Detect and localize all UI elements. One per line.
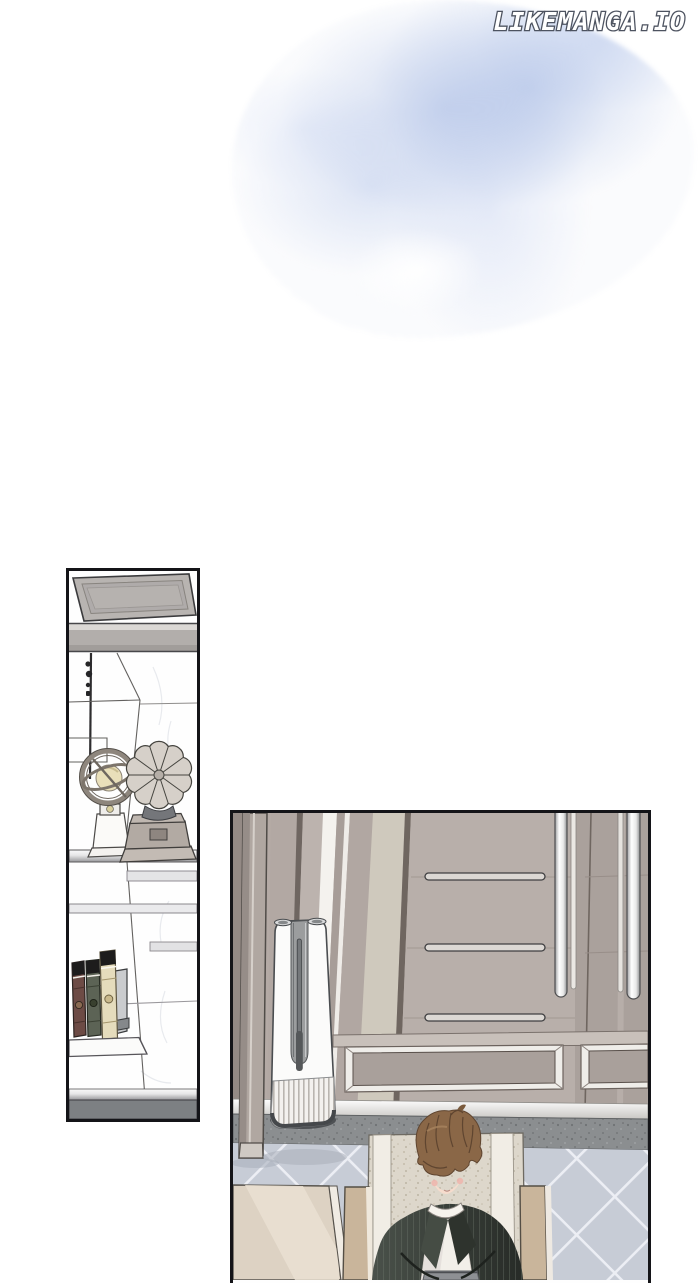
panel-room: [230, 810, 651, 1283]
watercolor-wash: [232, 0, 694, 338]
cabinet-top-slab: [73, 574, 196, 621]
base-plinth: [69, 1089, 197, 1119]
manga-page: LIKEMANGA.IO: [0, 0, 700, 1280]
site-watermark: LIKEMANGA.IO: [440, 2, 690, 42]
side-table: [233, 1185, 349, 1280]
watermark-text: LIKEMANGA.IO: [493, 7, 686, 36]
book-shelf-board: [69, 1038, 147, 1057]
door-bottom-panels: [333, 1031, 648, 1092]
cabinet-underside-band: [69, 623, 197, 652]
panel-bookshelf: [66, 568, 200, 1122]
